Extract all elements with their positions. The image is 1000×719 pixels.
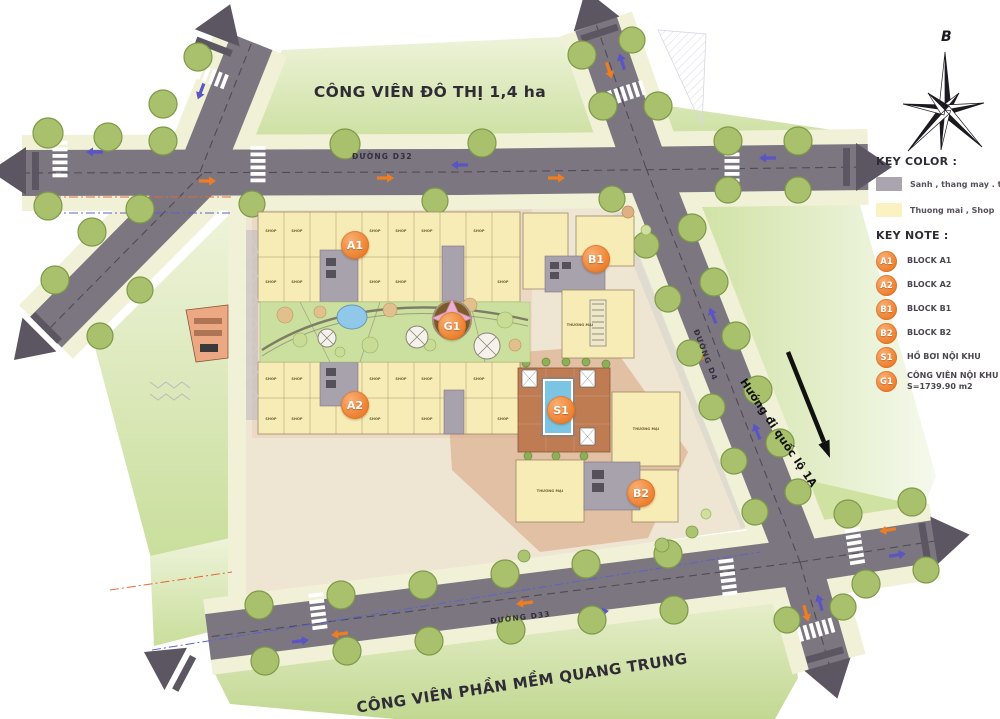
shop-unit-label: SHOP bbox=[265, 280, 277, 284]
street-tree bbox=[126, 195, 154, 223]
shop-unit-label: SHOP bbox=[421, 229, 433, 233]
street-tree bbox=[898, 488, 926, 516]
shop-unit-label: SHOP bbox=[421, 417, 433, 421]
legend-color-shop: Thuong mai , Shop bbox=[876, 203, 1000, 217]
key-color-title: KEY COLOR : bbox=[876, 155, 1000, 168]
block-a1-building: SHOP SHOP SHOP SHOP SHOP SHOP SHOP SHOP … bbox=[258, 212, 520, 302]
street-tree bbox=[699, 394, 725, 420]
legend-note-g1: G1 CÔNG VIÊN NỘI KHU S=1739.90 m2 bbox=[876, 371, 1000, 392]
street-tree bbox=[415, 627, 443, 655]
street-tree bbox=[714, 127, 742, 155]
street-tree bbox=[633, 232, 659, 258]
shop-unit-label: SHOP bbox=[497, 280, 509, 284]
shop-unit-label: SHOP bbox=[291, 280, 303, 284]
street-tree bbox=[149, 127, 177, 155]
street-tree bbox=[245, 591, 273, 619]
street-tree bbox=[715, 177, 741, 203]
legend-note-b1: B1 BLOCK B1 bbox=[876, 299, 1000, 320]
shop-unit-label: SHOP bbox=[497, 417, 509, 421]
street-tree bbox=[619, 27, 645, 53]
street-tree bbox=[678, 214, 706, 242]
street-tree bbox=[33, 118, 63, 148]
key-note-title: KEY NOTE : bbox=[876, 229, 1000, 242]
map-badge-a1: A1 bbox=[341, 231, 369, 259]
map-badge-b1: B1 bbox=[582, 245, 610, 273]
legend-note-a2: A2 BLOCK A2 bbox=[876, 275, 1000, 296]
legend-badge-a2: A2 bbox=[876, 275, 897, 296]
street-tree bbox=[774, 607, 800, 633]
street-tree bbox=[127, 277, 153, 303]
core-a2b bbox=[444, 390, 464, 434]
commercial-label: THƯƠNG MẠI bbox=[567, 323, 594, 327]
street-tree bbox=[578, 606, 606, 634]
street-tree bbox=[409, 571, 437, 599]
map-badge-a2: A2 bbox=[341, 391, 369, 419]
site-plan-map: SHOP SHOP SHOP SHOP SHOP SHOP SHOP SHOP … bbox=[0, 0, 1000, 719]
compass-rose bbox=[903, 52, 984, 151]
shop-unit-label: SHOP bbox=[369, 229, 381, 233]
shop-unit-label: SHOP bbox=[369, 417, 381, 421]
street-tree bbox=[41, 266, 69, 294]
street-tree bbox=[568, 41, 596, 69]
shop-unit-label: SHOP bbox=[421, 377, 433, 381]
street-tree bbox=[742, 499, 768, 525]
shop-unit-label: SHOP bbox=[369, 280, 381, 284]
legend-note-b2: B2 BLOCK B2 bbox=[876, 323, 1000, 344]
legend-color-label: Thuong mai , Shop bbox=[910, 206, 994, 215]
commercial-label: THƯƠNG MẠI bbox=[633, 427, 660, 431]
garden-g1 bbox=[260, 298, 530, 362]
shop-unit-label: SHOP bbox=[291, 417, 303, 421]
street-tree bbox=[422, 188, 448, 214]
shop-unit-label: SHOP bbox=[473, 377, 485, 381]
street-tree bbox=[784, 127, 812, 155]
legend-note-label: BLOCK A1 bbox=[907, 256, 951, 266]
shop-unit-label: SHOP bbox=[395, 280, 407, 284]
street-tree bbox=[34, 192, 62, 220]
street-tree bbox=[468, 129, 496, 157]
legend-note-s1: S1 HỒ BƠI NỘI KHU bbox=[876, 347, 1000, 368]
street-tree bbox=[87, 323, 113, 349]
street-tree bbox=[785, 177, 811, 203]
master-plan: SHOP SHOP SHOP SHOP SHOP SHOP SHOP SHOP … bbox=[0, 0, 1000, 719]
street-tree bbox=[852, 570, 880, 598]
shop-unit-label: SHOP bbox=[265, 417, 277, 421]
legend-badge-b1: B1 bbox=[876, 299, 897, 320]
west-sidewalk bbox=[228, 198, 246, 618]
legend-note-label: BLOCK B1 bbox=[907, 304, 951, 314]
block-a2-building: SHOP SHOP SHOP SHOP SHOP SHOP SHOP SHOP … bbox=[258, 362, 520, 434]
legend-note-label: BLOCK B2 bbox=[907, 328, 951, 338]
color-swatch-gray bbox=[876, 177, 902, 191]
street-tree bbox=[78, 218, 106, 246]
legend-badge-g1: G1 bbox=[876, 371, 897, 392]
legend-badge-b2: B2 bbox=[876, 323, 897, 344]
commercial-label: THƯƠNG MẠI bbox=[537, 489, 564, 493]
map-badge-g1: G1 bbox=[438, 312, 466, 340]
legend-note-label-sub: S=1739.90 m2 bbox=[907, 382, 998, 392]
shop-unit-label: SHOP bbox=[291, 229, 303, 233]
legend-note-label: BLOCK A2 bbox=[907, 280, 951, 290]
legend-note-a1: A1 BLOCK A1 bbox=[876, 251, 1000, 272]
street-tree bbox=[184, 43, 212, 71]
street-tree bbox=[94, 123, 122, 151]
legend-color-lobby: Sanh , thang may . thang bo bbox=[876, 177, 1000, 191]
legend-color-label: Sanh , thang may . thang bo bbox=[910, 180, 1000, 189]
compass-north-label: B bbox=[941, 29, 952, 45]
shop-unit-label: SHOP bbox=[473, 229, 485, 233]
top-park-title: CÔNG VIÊN ĐÔ THỊ 1,4 ha bbox=[255, 83, 605, 101]
street-tree bbox=[599, 186, 625, 212]
shop-unit-label: SHOP bbox=[265, 229, 277, 233]
shop-unit-label: SHOP bbox=[369, 377, 381, 381]
legend-note-label: HỒ BƠI NỘI KHU bbox=[907, 352, 981, 362]
street-tree bbox=[572, 550, 600, 578]
core-a1b bbox=[442, 246, 464, 302]
street-tree bbox=[721, 448, 747, 474]
street-tree bbox=[655, 286, 681, 312]
legend-note-label-main: CÔNG VIÊN NỘI KHU bbox=[907, 371, 998, 381]
street-tree bbox=[491, 560, 519, 588]
street-tree bbox=[830, 594, 856, 620]
street-tree bbox=[722, 322, 750, 350]
street-tree bbox=[644, 92, 672, 120]
shop-unit-label: SHOP bbox=[265, 377, 277, 381]
road-label-d32: ĐƯỜNG D32 bbox=[352, 152, 413, 161]
street-tree bbox=[913, 557, 939, 583]
shop-unit-label: SHOP bbox=[291, 377, 303, 381]
street-tree bbox=[700, 268, 728, 296]
street-tree bbox=[834, 500, 862, 528]
legend-badge-s1: S1 bbox=[876, 347, 897, 368]
legend-panel: KEY COLOR : Sanh , thang may . thang bo … bbox=[876, 155, 1000, 395]
legend-badge-a1: A1 bbox=[876, 251, 897, 272]
street-tree bbox=[660, 596, 688, 624]
street-tree bbox=[149, 90, 177, 118]
street-tree bbox=[251, 647, 279, 675]
shop-unit-label: SHOP bbox=[395, 229, 407, 233]
street-tree bbox=[333, 637, 361, 665]
map-badge-b2: B2 bbox=[627, 479, 655, 507]
shop-unit-label: SHOP bbox=[395, 377, 407, 381]
map-badge-s1: S1 bbox=[547, 396, 575, 424]
color-swatch-yellow bbox=[876, 203, 902, 217]
legend-note-label: CÔNG VIÊN NỘI KHU S=1739.90 m2 bbox=[907, 371, 998, 392]
street-tree bbox=[327, 581, 355, 609]
garden-pond bbox=[337, 305, 367, 329]
